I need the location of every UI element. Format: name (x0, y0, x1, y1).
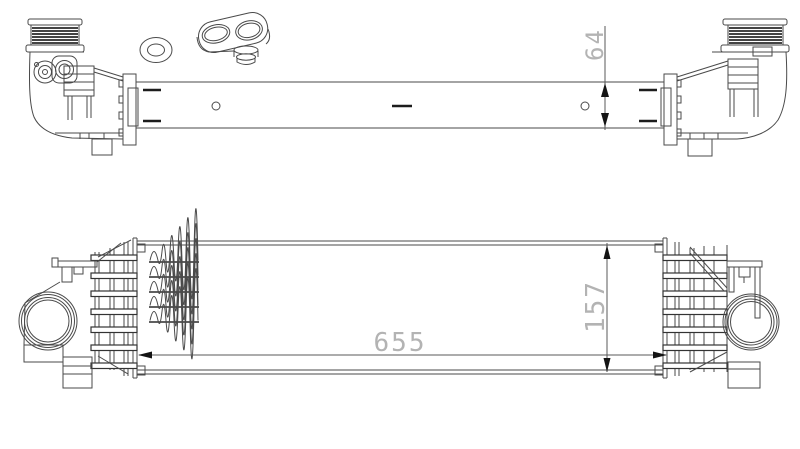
header-plate-left-top (119, 74, 138, 145)
arrow-left (138, 352, 152, 359)
dimension-height-label: 157 (581, 280, 611, 333)
header-right-front (655, 238, 727, 378)
tank-foot-right-front (728, 362, 760, 388)
header-plate-right-top (661, 74, 681, 145)
arrow-down (601, 113, 609, 127)
arrow-right (653, 352, 667, 359)
mounting-bracket-right-top (677, 59, 758, 117)
crimp-tabs-right (663, 255, 727, 369)
dimension-length-label: 655 (374, 328, 427, 358)
outlet-tank-front (723, 261, 779, 388)
dimension-depth-label: 64 (581, 28, 609, 61)
technical-drawing-canvas: 64 (0, 0, 800, 449)
tank-foot-right-top (688, 139, 712, 156)
intercooler-drawing: 64 (0, 0, 800, 449)
dimension-height: 157 (581, 243, 611, 372)
arrow-up (601, 83, 609, 97)
tank-outline-right-top (677, 52, 787, 139)
loose-parts (140, 10, 271, 65)
dimension-depth: 64 (581, 26, 609, 130)
header-left-front (91, 238, 145, 378)
tank-foot-left-top (92, 139, 112, 155)
o-ring-part (140, 38, 172, 63)
front-view: 655 157 (19, 209, 779, 388)
core-top-view (136, 82, 664, 128)
top-view: 64 (26, 19, 789, 156)
tank-lower-extension-left (63, 357, 92, 388)
outlet-port-right (723, 294, 779, 350)
inlet-assembly-left-top (26, 19, 123, 155)
hose-connector-left (26, 19, 84, 52)
flange-fitting-part (196, 10, 271, 65)
fin-rows (149, 209, 199, 359)
outlet-assembly-right-top (677, 19, 789, 156)
mount-hole-right (581, 102, 589, 110)
mounting-bracket-left-top (64, 66, 123, 120)
mount-hole-left (212, 102, 220, 110)
arrow-up (604, 245, 611, 259)
inlet-port-left (19, 292, 77, 350)
